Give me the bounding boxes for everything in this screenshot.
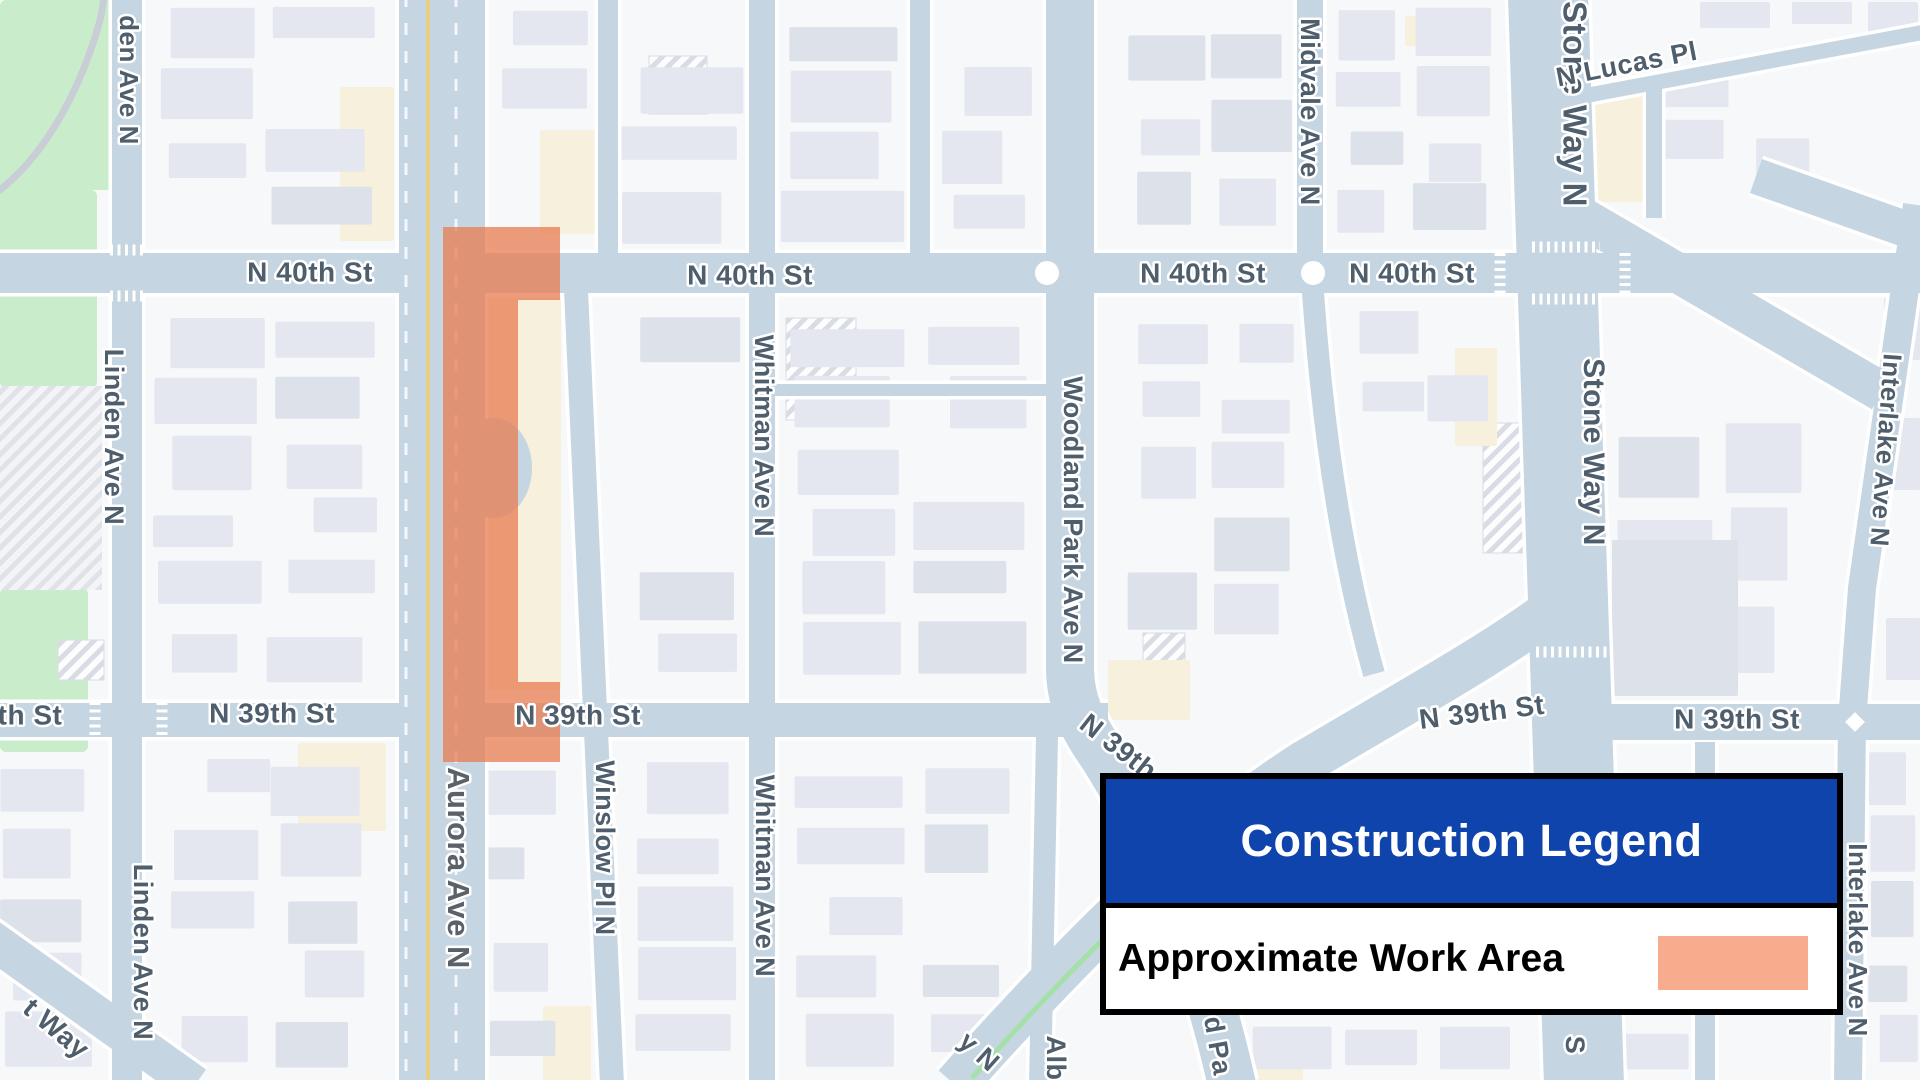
street-label: N 40th St [1349, 257, 1475, 288]
work-area-swatch [1658, 936, 1808, 990]
legend-item-work-area: Approximate Work Area [1106, 908, 1837, 1009]
street-label: Whitman Ave N [749, 335, 779, 538]
street-label: N 40th St [247, 256, 373, 287]
street-label: S [1560, 1036, 1590, 1055]
street-label: Whitman Ave N [750, 775, 780, 978]
street-label: th St [0, 699, 62, 730]
map-viewport[interactable]: den Ave NLinden Ave NLinden Ave NN 40th … [0, 0, 1920, 1080]
legend-item-label: Approximate Work Area [1106, 937, 1564, 981]
street-label: N 39th St [1674, 703, 1800, 734]
street-label: Midvale Ave N [1295, 18, 1325, 206]
street-label: N 39th St [209, 697, 335, 728]
street-label: Interlake Ave N [1843, 843, 1873, 1036]
street-label: Woodland Park Ave N [1058, 376, 1088, 664]
street-label: N 40th St [687, 259, 813, 290]
street-label: Linden Ave N [128, 864, 158, 1041]
street-label: Stone Way N [1556, 1, 1593, 207]
street-label: N 39th St [515, 699, 641, 730]
street-label: Alb [1041, 1036, 1071, 1080]
street-label: N 40th St [1140, 257, 1266, 288]
construction-legend: Construction Legend Approximate Work Are… [1100, 773, 1843, 1015]
street-label: Linden Ave N [99, 349, 129, 526]
street-label: Stone Way N [1577, 358, 1610, 546]
legend-title: Construction Legend [1241, 815, 1703, 867]
legend-title-bar: Construction Legend [1106, 779, 1837, 908]
street-label: den Ave N [114, 15, 144, 145]
street-label: Winslow Pl N [590, 760, 620, 935]
street-label: Aurora Ave N [441, 767, 476, 969]
